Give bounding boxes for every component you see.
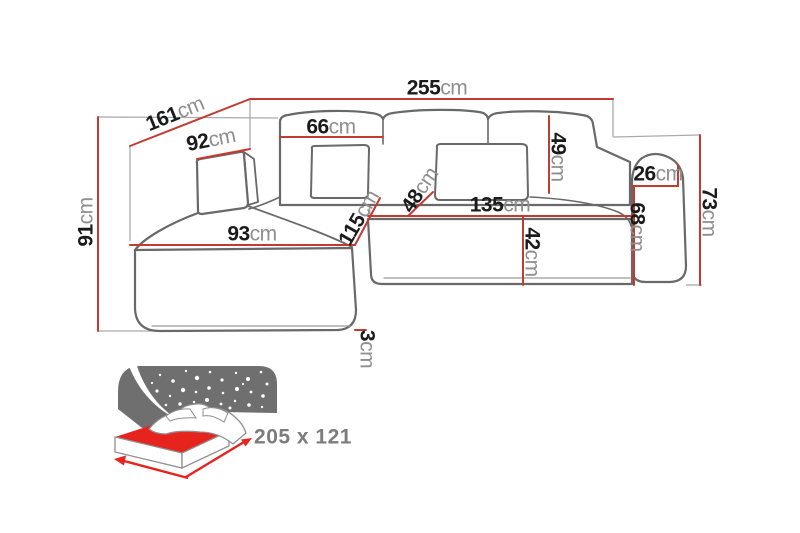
dim-label-73: 73cm [699, 187, 720, 236]
sofa-dimension-diagram: 255cm 161cm 92cm 91cm 66cm 49cm 26cm 73c… [0, 0, 800, 533]
dim-label-49: 49cm [548, 132, 569, 181]
sleeping-area-label: 205 x 121 [254, 427, 352, 448]
dim-label-91: 91cm [76, 197, 97, 246]
bed-icon [114, 366, 277, 478]
dim-label-3: 3cm [357, 330, 378, 368]
dim-label-68: 68cm [627, 202, 648, 251]
left-armrest [197, 152, 248, 214]
dim-label-135: 135cm [470, 195, 531, 216]
dim-label-255: 255cm [407, 78, 468, 99]
dim-label-66: 66cm [306, 117, 355, 138]
diagram-canvas [0, 0, 800, 533]
lumbar-pillow-right [435, 144, 528, 200]
dim-label-26: 26cm [633, 164, 682, 185]
chaise-front [135, 248, 356, 331]
lumbar-pillow-left [311, 145, 369, 198]
dim-label-42: 42cm [522, 227, 543, 276]
dim-label-93: 93cm [227, 224, 276, 245]
seat-front [368, 219, 632, 284]
